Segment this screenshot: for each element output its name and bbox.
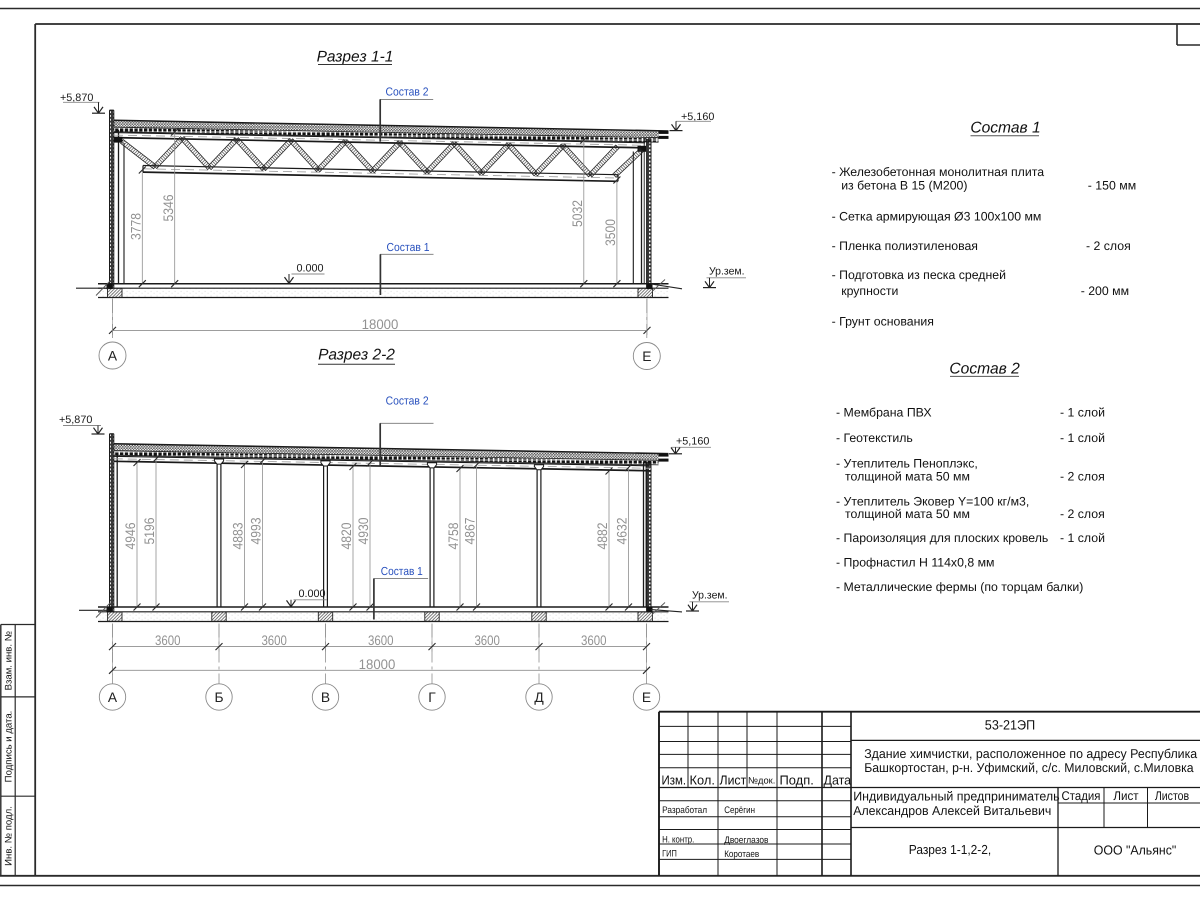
svg-text:5032: 5032 bbox=[570, 200, 585, 227]
svg-text:Разрез 1-1,2-2,: Разрез 1-1,2-2, bbox=[909, 842, 992, 857]
svg-text:Подпись и дата.: Подпись и дата. bbox=[4, 711, 15, 783]
svg-text:Состав 1: Состав 1 bbox=[381, 565, 423, 578]
svg-text:Серёгин: Серёгин bbox=[724, 805, 755, 816]
svg-text:крупности: крупности bbox=[841, 284, 898, 298]
svg-text:толщиной мата 50 мм: толщиной мата 50 мм bbox=[845, 507, 970, 521]
svg-text:- Пароизоляция для плоских кро: - Пароизоляция для плоских кровель bbox=[836, 531, 1048, 545]
svg-text:+5,870: +5,870 bbox=[59, 414, 92, 426]
svg-text:Двоеглазов: Двоеглазов bbox=[724, 835, 768, 846]
svg-text:Коротаев: Коротаев bbox=[724, 849, 759, 860]
svg-text:- Грунт основания: - Грунт основания bbox=[832, 314, 934, 328]
svg-text:4867: 4867 bbox=[463, 518, 478, 545]
svg-text:- 1 слой: - 1 слой bbox=[1060, 431, 1105, 445]
svg-text:ГИП: ГИП bbox=[662, 849, 677, 860]
svg-text:Состав 1: Состав 1 bbox=[387, 241, 430, 254]
svg-text:18000: 18000 bbox=[362, 317, 399, 332]
svg-text:Листов: Листов bbox=[1155, 789, 1190, 803]
svg-text:0.000: 0.000 bbox=[297, 263, 324, 275]
svg-text:3600: 3600 bbox=[155, 633, 181, 648]
svg-text:- 2 слоя: - 2 слоя bbox=[1086, 239, 1131, 253]
svg-text:4632: 4632 bbox=[615, 518, 630, 545]
svg-text:Е: Е bbox=[642, 690, 651, 705]
svg-text:4883: 4883 bbox=[231, 522, 246, 549]
svg-text:18000: 18000 bbox=[359, 657, 396, 672]
svg-text:Е: Е bbox=[642, 349, 651, 364]
svg-text:- 2 слоя: - 2 слоя bbox=[1060, 507, 1105, 521]
svg-text:- Подготовка из песка средней: - Подготовка из песка средней bbox=[832, 268, 1006, 282]
svg-text:+5,160: +5,160 bbox=[676, 435, 709, 447]
svg-text:Дата: Дата bbox=[824, 773, 852, 788]
svg-text:толщиной мата 50 мм: толщиной мата 50 мм bbox=[845, 469, 970, 483]
svg-text:4758: 4758 bbox=[446, 522, 461, 549]
svg-text:- 1 слой: - 1 слой bbox=[1060, 405, 1105, 419]
svg-text:- Геотекстиль: - Геотекстиль bbox=[836, 431, 913, 445]
svg-text:Взам. инв. №: Взам. инв. № bbox=[4, 631, 15, 690]
svg-text:4993: 4993 bbox=[249, 517, 264, 544]
svg-text:- Железобетонная монолитная п: - Железобетонная монолитная плита bbox=[832, 165, 1045, 179]
svg-text:Состав 2: Состав 2 bbox=[386, 394, 429, 407]
svg-text:А: А bbox=[108, 348, 118, 363]
svg-text:3500: 3500 bbox=[603, 219, 618, 246]
svg-text:4930: 4930 bbox=[356, 517, 371, 544]
svg-text:- 150 мм: - 150 мм bbox=[1088, 179, 1136, 193]
svg-text:5346: 5346 bbox=[161, 194, 176, 221]
svg-text:Башкортостан, р-н. Уфимский, с: Башкортостан, р-н. Уфимский, с/с. Миловс… bbox=[864, 760, 1194, 775]
svg-text:3600: 3600 bbox=[261, 633, 287, 648]
svg-text:Инв. № подл.: Инв. № подл. bbox=[4, 806, 15, 866]
svg-text:Изм.: Изм. bbox=[662, 773, 687, 788]
svg-text:Кол.: Кол. bbox=[690, 773, 715, 788]
svg-text:В: В bbox=[321, 690, 330, 705]
svg-text:- Сетка армирующая Ø3 100х100: - Сетка армирующая Ø3 100х100 мм bbox=[832, 209, 1042, 223]
svg-text:3600: 3600 bbox=[581, 633, 607, 648]
svg-text:- Пленка полиэтиленовая: - Пленка полиэтиленовая bbox=[832, 239, 978, 253]
svg-text:- 200 мм: - 200 мм bbox=[1081, 284, 1129, 298]
svg-text:- 1 слой: - 1 слой bbox=[1060, 531, 1105, 545]
svg-text:Разрез 1-1: Разрез 1-1 bbox=[317, 49, 394, 66]
svg-text:Подп.: Подп. bbox=[780, 773, 814, 788]
svg-text:Лист: Лист bbox=[720, 773, 747, 788]
svg-text:Разработал: Разработал bbox=[662, 805, 707, 816]
svg-text:0.000: 0.000 bbox=[299, 588, 326, 600]
svg-text:Н. контр.: Н. контр. bbox=[662, 834, 694, 845]
svg-text:53-21ЭП: 53-21ЭП bbox=[985, 718, 1035, 733]
svg-text:Здание химчистки, расположенн: Здание химчистки, расположенное по адрес… bbox=[864, 746, 1198, 761]
svg-text:Разрез 2-2: Разрез 2-2 bbox=[318, 347, 395, 364]
svg-text:3600: 3600 bbox=[474, 633, 500, 648]
svg-text:3600: 3600 bbox=[368, 633, 394, 648]
svg-text:4820: 4820 bbox=[339, 522, 354, 549]
svg-text:Д: Д bbox=[534, 690, 544, 705]
svg-text:А: А bbox=[108, 690, 118, 705]
svg-text:Ур.зем.: Ур.зем. bbox=[709, 265, 745, 277]
svg-text:3778: 3778 bbox=[129, 213, 144, 240]
svg-text:Лист: Лист bbox=[1113, 789, 1138, 803]
svg-text:- Мембрана ПВХ: - Мембрана ПВХ bbox=[836, 405, 932, 419]
svg-text:№док.: №док. bbox=[748, 776, 775, 786]
svg-text:- Металлические фермы (по торц: - Металлические фермы (по торцам балки) bbox=[836, 580, 1083, 594]
svg-text:4882: 4882 bbox=[595, 523, 610, 550]
svg-text:ООО "Альянс": ООО "Альянс" bbox=[1094, 843, 1177, 858]
svg-text:Стадия: Стадия bbox=[1062, 789, 1101, 803]
svg-text:Г: Г bbox=[428, 690, 436, 705]
svg-text:Состав 2: Состав 2 bbox=[386, 86, 429, 99]
svg-text:- 2 слоя: - 2 слоя bbox=[1060, 469, 1105, 483]
svg-text:5196: 5196 bbox=[142, 517, 157, 544]
svg-text:Состав 2: Состав 2 bbox=[949, 360, 1020, 377]
svg-text:Ур.зем.: Ур.зем. bbox=[692, 590, 728, 602]
svg-text:Индивидуальный предприниматель: Индивидуальный предприниматель bbox=[853, 789, 1060, 804]
svg-text:из бетона В 15 (М200): из бетона В 15 (М200) bbox=[841, 179, 967, 193]
svg-text:Состав 1: Состав 1 bbox=[970, 120, 1040, 137]
svg-text:Б: Б bbox=[214, 690, 223, 705]
svg-text:Александров Алексей Витальевич: Александров Алексей Витальевич bbox=[853, 803, 1051, 818]
svg-text:- Профнастил Н 114х0,8 мм: - Профнастил Н 114х0,8 мм bbox=[836, 556, 994, 570]
svg-text:4946: 4946 bbox=[123, 522, 138, 549]
